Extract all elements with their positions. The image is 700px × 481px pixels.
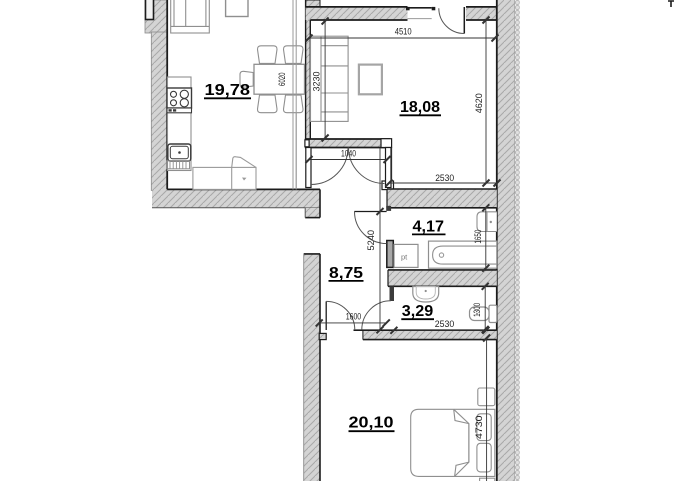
svg-text:5240: 5240	[366, 230, 377, 251]
svg-text:19,78: 19,78	[205, 82, 251, 99]
svg-text:8,75: 8,75	[329, 265, 363, 282]
svg-text:4,17: 4,17	[413, 218, 445, 235]
svg-text:20,10: 20,10	[349, 414, 394, 431]
svg-text:2530: 2530	[435, 319, 455, 330]
svg-text:6020: 6020	[277, 73, 288, 87]
svg-text:3,29: 3,29	[402, 303, 434, 320]
svg-text:4620: 4620	[474, 93, 485, 113]
svg-text:3230: 3230	[312, 72, 323, 92]
svg-text:pt: pt	[401, 253, 408, 262]
svg-text:2530: 2530	[435, 173, 454, 184]
svg-text:1040: 1040	[341, 149, 356, 160]
svg-text:4730: 4730	[474, 416, 485, 440]
svg-text:1300: 1300	[472, 303, 483, 317]
svg-text:1600: 1600	[346, 311, 362, 322]
svg-text:4510: 4510	[395, 26, 412, 37]
svg-text:1650: 1650	[473, 230, 484, 244]
svg-text:18,08: 18,08	[400, 99, 440, 116]
